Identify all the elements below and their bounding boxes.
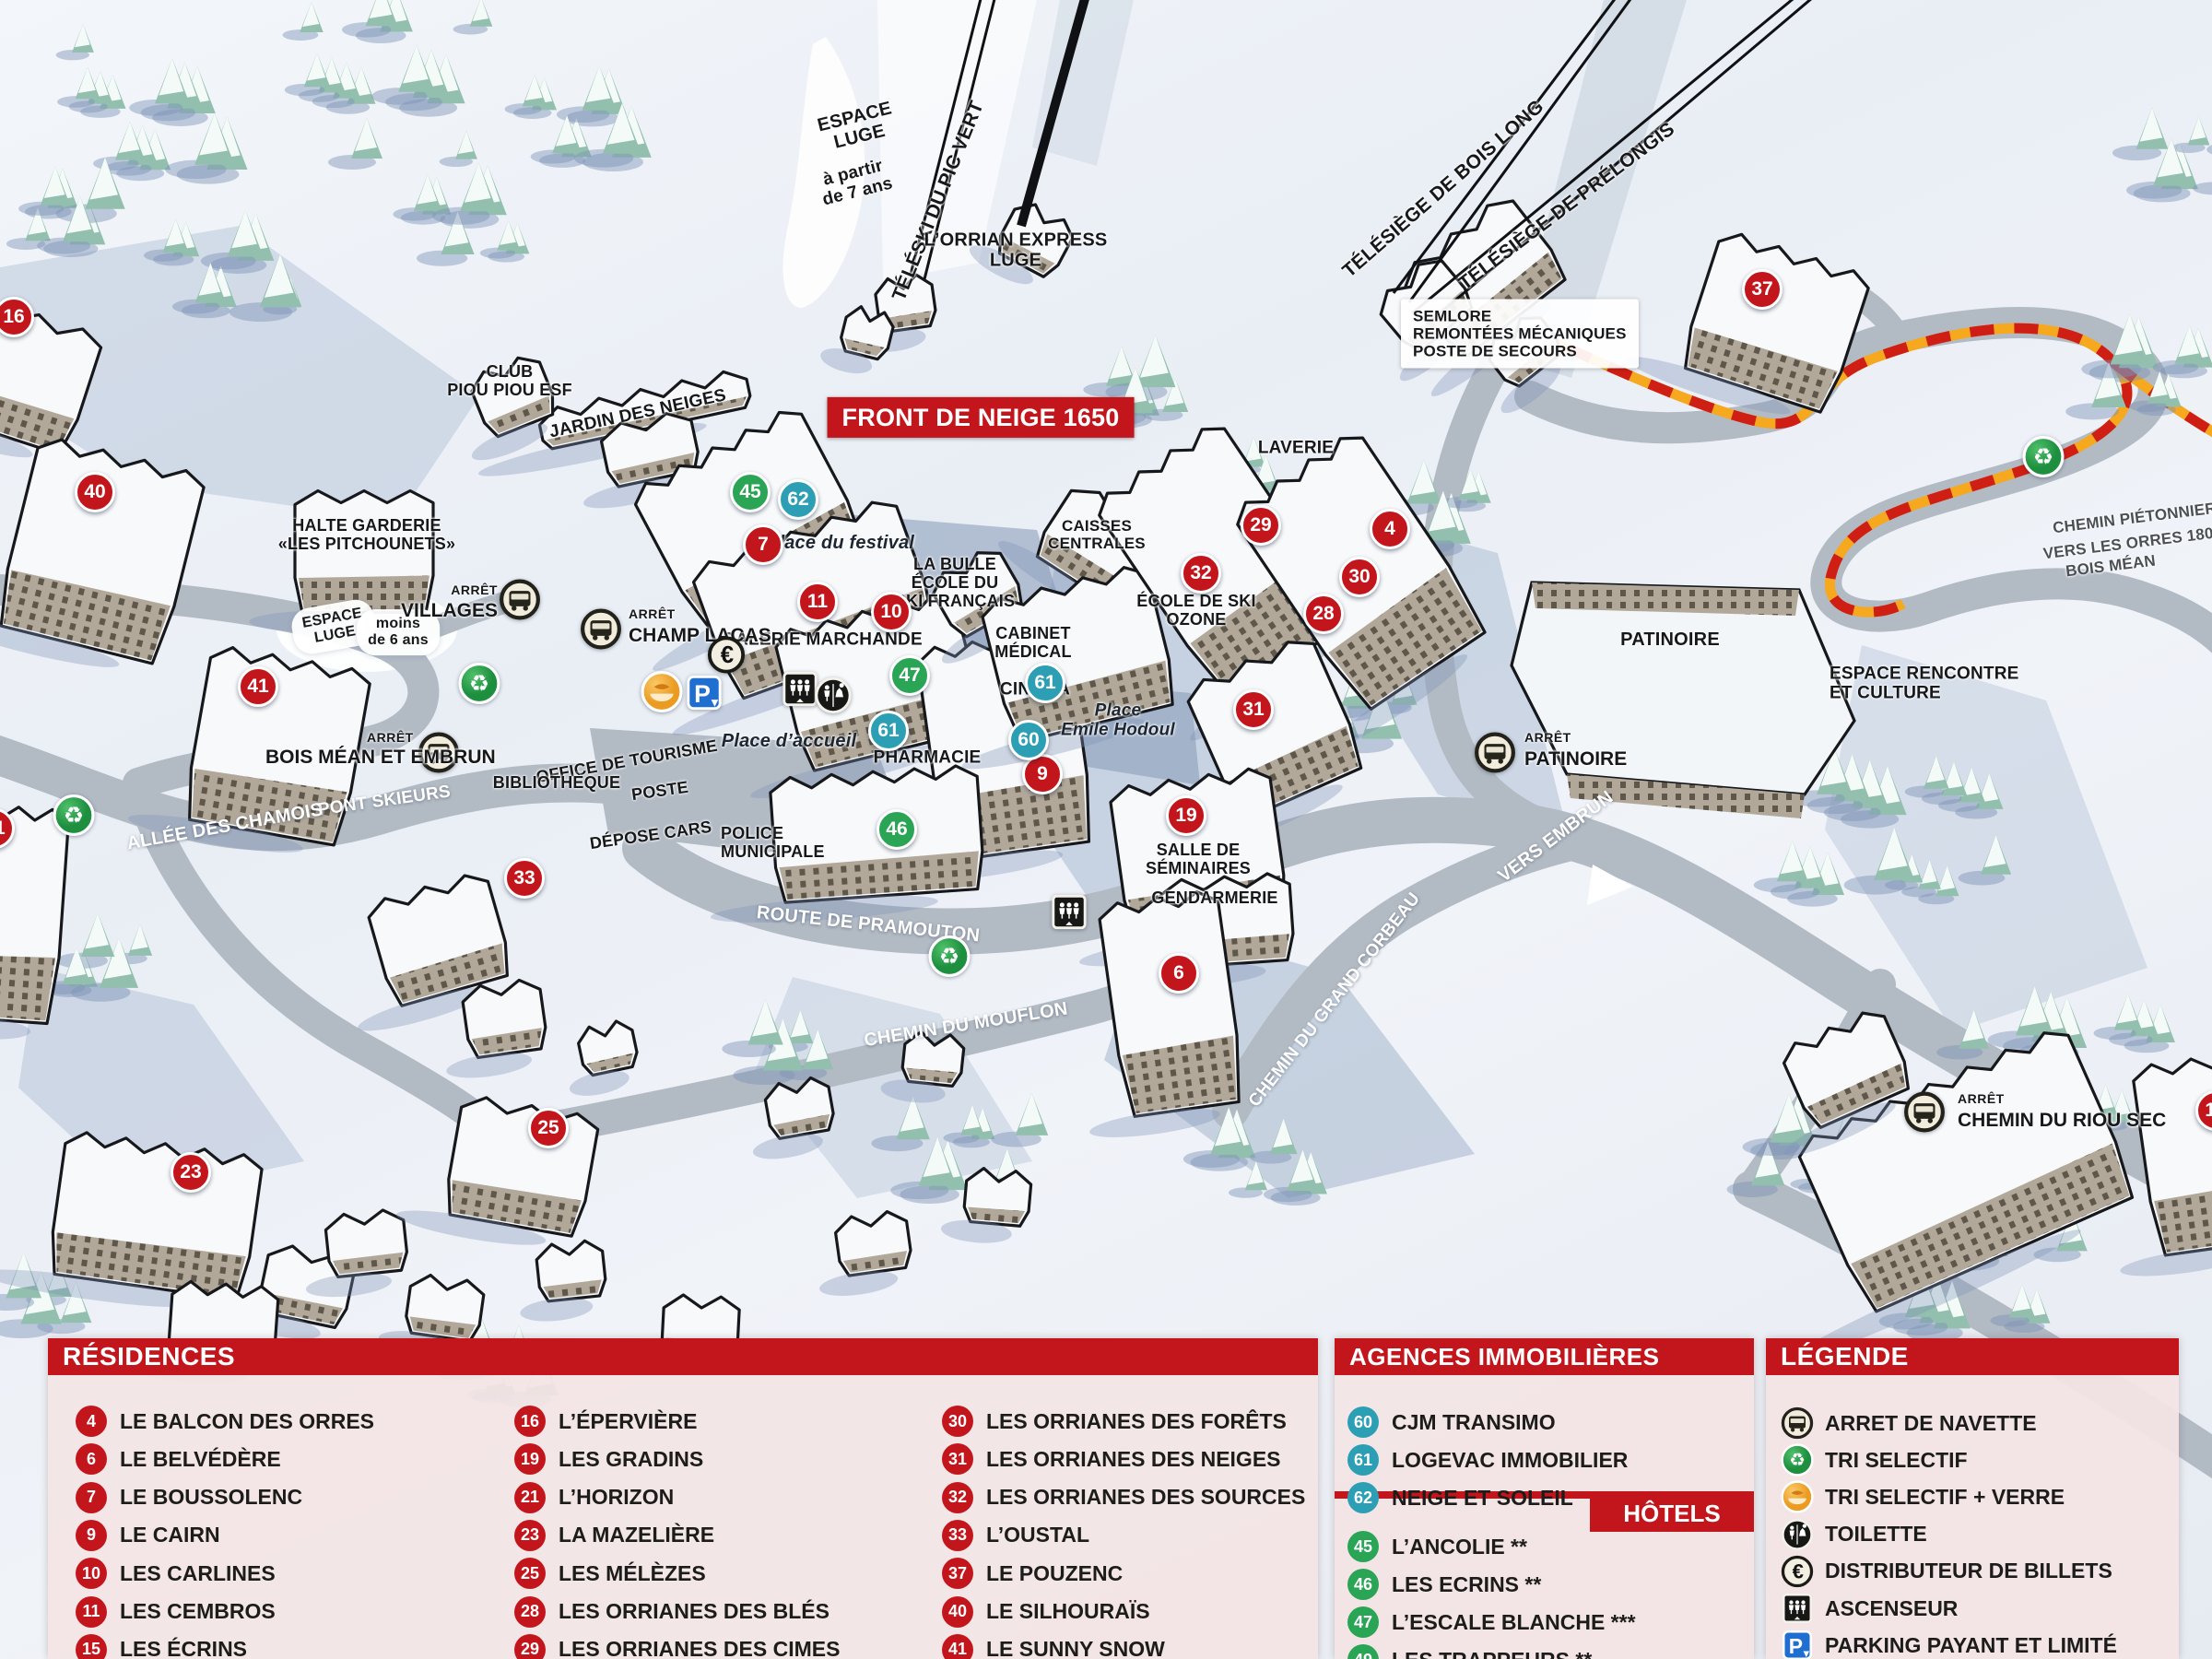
row-number-badge: 19 [514, 1443, 546, 1475]
legend-row: 6LE BELVÉDÈRE [76, 1441, 281, 1477]
row-number-badge: 45 [1347, 1531, 1379, 1562]
row-number-badge: 30 [942, 1406, 973, 1437]
panel-legende: LÉGENDE ARRET DE NAVETTE♻TRI SELECTIFTRI… [1766, 1338, 2179, 1659]
row-number-badge: 29 [514, 1634, 546, 1659]
tree [2193, 150, 2212, 194]
row-label: TOILETTE [1825, 1522, 1927, 1547]
legend-row: 32LES ORRIANES DES SOURCES [942, 1479, 1305, 1516]
tree [440, 131, 477, 167]
row-label: LES GRADINS [559, 1447, 703, 1472]
wc-icon [1779, 1518, 1816, 1551]
glass-icon [1779, 1480, 1816, 1513]
legend-row: 16L’ÉPERVIÈRE [514, 1403, 697, 1440]
row-label: DISTRIBUTEUR DE BILLETS [1825, 1559, 2112, 1583]
row-number-badge: 47 [1347, 1606, 1379, 1638]
row-label: LES ORRIANES DES BLÉS [559, 1599, 829, 1624]
row-label: NEIGE ET SOLEIL [1392, 1486, 1573, 1511]
legend-row: 4LE BALCON DES ORRES [76, 1403, 374, 1440]
row-label: LES ORRIANES DES FORÊTS [986, 1409, 1287, 1434]
row-label: L’OUSTAL [986, 1523, 1089, 1547]
row-label: ASCENSEUR [1825, 1596, 1958, 1621]
row-number-badge: 46 [1347, 1569, 1379, 1600]
legend-row: PPARKING PAYANT ET LIMITÉ [1779, 1627, 2117, 1659]
row-number-badge: 7 [76, 1482, 107, 1513]
row-number-badge: 23 [514, 1520, 546, 1551]
row-number-badge: 16 [514, 1406, 546, 1437]
tree [283, 2, 324, 41]
legend-row: 23LA MAZELIÈRE [514, 1517, 714, 1554]
legend-row: 37LE POUZENC [942, 1555, 1123, 1592]
tree [371, 45, 435, 105]
row-number-badge: 21 [514, 1482, 546, 1513]
row-number-badge: 32 [942, 1482, 973, 1513]
tree [56, 24, 94, 60]
lift-icon [1779, 1592, 1816, 1625]
legende-title: LÉGENDE [1766, 1338, 2179, 1375]
bus-icon [1779, 1406, 1816, 1440]
legend-row: 25LES MÉLÈZES [514, 1555, 706, 1592]
tree [2094, 994, 2142, 1040]
residences-title: RÉSIDENCES [48, 1338, 1318, 1375]
svg-text:♻: ♻ [1789, 1450, 1806, 1471]
row-number-badge: 37 [942, 1558, 973, 1589]
legend-row: 40LE SILHOURAÏS [942, 1594, 1150, 1630]
legend-row: €DISTRIBUTEUR DE BILLETS [1779, 1553, 2112, 1590]
row-number-badge: 62 [1347, 1482, 1379, 1513]
tree [56, 913, 114, 969]
tree [285, 53, 330, 96]
row-number-badge: 15 [76, 1634, 107, 1659]
tree [722, 999, 782, 1057]
building [558, 1018, 643, 1100]
row-number-badge: 49 [1347, 1644, 1379, 1659]
row-number-badge: 4 [76, 1406, 107, 1437]
tree [504, 75, 547, 114]
legend-row: ♻TRI SELECTIF [1779, 1441, 1968, 1478]
legend-row: 61LOGEVAC IMMOBILIER [1347, 1441, 1628, 1478]
tree [453, 0, 493, 34]
row-label: LE POUZENC [986, 1561, 1123, 1586]
legend-row: 49LES TRAPPEURS ** [1347, 1641, 1592, 1659]
legend-row: ASCENSEUR [1779, 1590, 1958, 1627]
row-label: LE BELVÉDÈRE [120, 1447, 281, 1472]
row-label: LE SUNNY SNOW [986, 1637, 1165, 1659]
row-label: LES ORRIANES DES CIMES [559, 1637, 840, 1659]
row-label: CJM TRANSIMO [1392, 1410, 1556, 1435]
building [1623, 212, 1872, 433]
row-number-badge: 40 [942, 1596, 973, 1628]
row-number-badge: 9 [76, 1520, 107, 1551]
row-number-badge: 28 [514, 1596, 546, 1628]
row-label: LOGEVAC IMMOBILIER [1392, 1448, 1628, 1473]
row-label: LE SILHOURAÏS [986, 1599, 1150, 1624]
building [126, 635, 371, 866]
row-label: LA MAZELIÈRE [559, 1523, 714, 1547]
legend-row: 62NEIGE ET SOLEIL [1347, 1479, 1573, 1516]
building [513, 1239, 609, 1324]
legend-row: 21L’HORIZON [514, 1479, 674, 1516]
legend-row: 10LES CARLINES [76, 1555, 276, 1592]
legend-row: 45L’ANCOLIE ** [1347, 1528, 1527, 1565]
legend-row: TOILETTE [1779, 1516, 1927, 1553]
svg-text:P: P [1789, 1634, 1803, 1658]
row-number-badge: 41 [942, 1634, 973, 1659]
euro-icon: € [1779, 1555, 1816, 1588]
building [299, 1208, 411, 1300]
building [810, 1209, 916, 1300]
legend-row: ARRET DE NAVETTE [1779, 1405, 2037, 1441]
row-label: LES MÉLÈZES [559, 1561, 706, 1586]
tree [2171, 117, 2209, 153]
tree [1754, 841, 1808, 892]
row-number-badge: 25 [514, 1558, 546, 1589]
row-label: TRI SELECTIF + VERRE [1825, 1485, 2065, 1510]
tree [2206, 105, 2212, 157]
row-number-badge: 6 [76, 1443, 107, 1475]
hotels-title: HÔTELS [1590, 1495, 1754, 1532]
legend-row: 46LES ECRINS ** [1347, 1566, 1541, 1603]
row-label: LES ORRIANES DES NEIGES [986, 1447, 1281, 1472]
legend-row: 41LE SUNNY SNOW [942, 1631, 1165, 1659]
building [818, 300, 896, 381]
parking-icon: P [1779, 1629, 1816, 1659]
row-label: LES ECRINS ** [1392, 1572, 1541, 1597]
row-label: LES ÉCRINS [120, 1637, 247, 1659]
panel-agences-hotels: AGENCES IMMOBILIÈRES HÔTELS 60CJM TRANSI… [1335, 1338, 1754, 1659]
row-number-badge: 10 [76, 1558, 107, 1589]
legend-row: 7LE BOUSSOLENC [76, 1479, 302, 1516]
legend-row: 9LE CAIRN [76, 1517, 220, 1554]
svg-text:€: € [1793, 1559, 1804, 1583]
row-number-badge: 61 [1347, 1444, 1379, 1476]
recycle-icon: ♻ [1779, 1443, 1816, 1477]
row-number-badge: 60 [1347, 1406, 1379, 1438]
legend-row: 31LES ORRIANES DES NEIGES [942, 1441, 1281, 1477]
row-number-badge: 31 [942, 1443, 973, 1475]
row-label: LE BALCON DES ORRES [120, 1409, 374, 1434]
legend-row: 11LES CEMBROS [76, 1594, 276, 1630]
row-label: L’ESCALE BLANCHE *** [1392, 1610, 1636, 1635]
row-number-badge: 33 [942, 1520, 973, 1551]
tree [57, 67, 100, 108]
legend-row: 28LES ORRIANES DES BLÉS [514, 1594, 829, 1630]
row-label: TRI SELECTIF [1825, 1448, 1968, 1473]
row-label: L’ANCOLIE ** [1392, 1535, 1527, 1559]
legend-row: 33L’OUSTAL [942, 1517, 1089, 1554]
legend-row: 47L’ESCALE BLANCHE *** [1347, 1604, 1636, 1641]
row-label: LE CAIRN [120, 1523, 220, 1547]
row-label: PARKING PAYANT ET LIMITÉ [1825, 1633, 2117, 1658]
row-label: LES CARLINES [120, 1561, 276, 1586]
row-label: LES TRAPPEURS ** [1392, 1648, 1592, 1659]
legend-row: 30LES ORRIANES DES FORÊTS [942, 1403, 1287, 1440]
row-label: ARRET DE NAVETTE [1825, 1411, 2037, 1436]
legend-row: 15LES ÉCRINS [76, 1631, 247, 1659]
row-label: L’ÉPERVIÈRE [559, 1409, 697, 1434]
row-label: LE BOUSSOLENC [120, 1485, 302, 1510]
row-number-badge: 11 [76, 1596, 107, 1628]
agences-title: AGENCES IMMOBILIÈRES [1335, 1338, 1754, 1375]
tree [93, 122, 145, 171]
legend-row: 29LES ORRIANES DES CIMES [514, 1631, 840, 1659]
tree [328, 118, 382, 170]
tree [342, 0, 397, 38]
row-label: LES ORRIANES DES SOURCES [986, 1485, 1305, 1510]
resort-map: ESPACE LUGEà partir de 7 ansTÉLÉSKI DU P… [0, 0, 2212, 1659]
tree [129, 58, 190, 115]
tree [2112, 108, 2168, 160]
row-label: L’HORIZON [559, 1485, 674, 1510]
panel-residences: RÉSIDENCES 4LE BALCON DES ORRES6LE BELVÉ… [48, 1338, 1318, 1659]
legend-row: 60CJM TRANSIMO [1347, 1404, 1556, 1441]
legend-row: 19LES GRADINS [514, 1441, 703, 1477]
building-patinoire [1512, 582, 1854, 818]
legend-row: TRI SELECTIF + VERRE [1779, 1478, 2065, 1515]
row-label: LES CEMBROS [120, 1599, 276, 1624]
